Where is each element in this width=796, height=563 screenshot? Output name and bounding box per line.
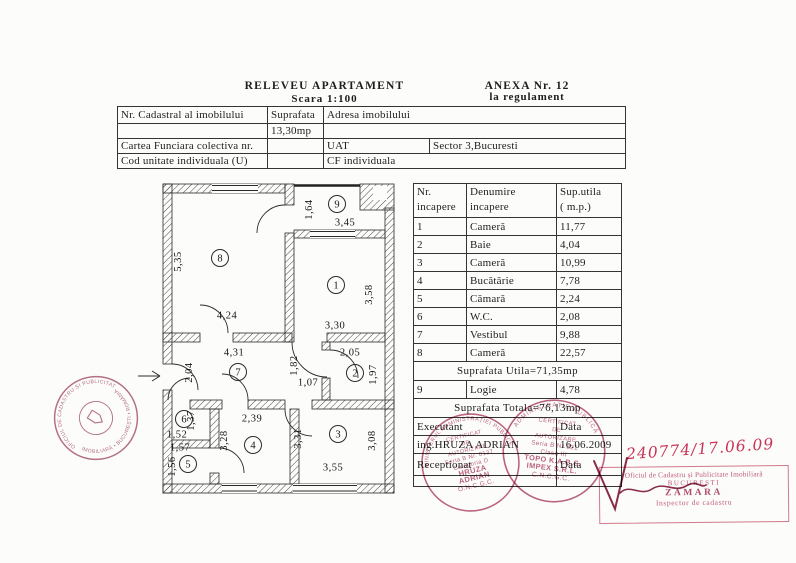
room-number: 7 <box>235 368 240 379</box>
sector-value: Sector 3,Bucuresti <box>430 139 626 154</box>
room-area: 10,99 <box>557 254 622 272</box>
room-name: Vestibul <box>467 326 557 344</box>
room-row: 3Cameră10,99 <box>414 254 622 272</box>
room-nr: 8 <box>414 344 467 362</box>
room-number: 3 <box>335 430 340 441</box>
dimension-label: 3,58 <box>364 284 375 304</box>
stamp-text-line: CERTIFICAT <box>538 417 577 428</box>
header-denumire-line2: incapere <box>470 200 553 215</box>
floorplan-svg: 8912765435,354,241,643,453,583,302,051,9… <box>130 182 400 500</box>
svg-text:OFICIUL DE CADASTRU ȘI PUBLICI: OFICIUL DE CADASTRU ȘI PUBLICITATE <box>33 358 118 458</box>
room-name: W.C. <box>467 308 557 326</box>
dimension-label: 2,04 <box>184 362 195 383</box>
dimension-label: 3,30 <box>325 321 345 332</box>
room-area: 4,04 <box>557 236 622 254</box>
adresa-value <box>324 124 626 139</box>
dimension-label: 2,05 <box>340 348 360 359</box>
room-name: Baie <box>467 236 557 254</box>
floorplan: 8912765435,354,241,643,453,583,302,051,9… <box>130 182 400 500</box>
room-name: Cameră <box>467 344 557 362</box>
dimension-label: 2,39 <box>242 414 262 425</box>
rooms-header-row: Nr. incapere Denumire incapere Sup.utila… <box>414 184 622 218</box>
room-area: 2,24 <box>557 290 622 308</box>
title-block: RELEVEU APARTAMENT Scara 1:100 <box>222 80 427 105</box>
header-nr-incapere: Nr. incapere <box>414 184 467 218</box>
dimension-label: 4,31 <box>224 348 244 359</box>
dimension-label: 3,45 <box>335 218 355 229</box>
walls-group <box>163 184 394 493</box>
info-row-4: Cod unitate individuala (U) CF individua… <box>118 154 626 169</box>
room-area: 11,77 <box>557 218 622 236</box>
subtotal-row: Suprafata Utila=71,35mp <box>414 362 622 381</box>
header-suputila: Sup.utila ( m.p.) <box>557 184 622 218</box>
anexa-block: ANEXA Nr. 12 la regulament <box>466 80 588 103</box>
coat-of-arms-icon <box>87 410 104 426</box>
room-number: 2 <box>352 369 357 380</box>
room-row: 5Cămară2,24 <box>414 290 622 308</box>
cod-unitate-label: Cod unitate individuala (U) <box>118 154 268 169</box>
info-row-3: Cartea Funciara colectiva nr. UAT Sector… <box>118 139 626 154</box>
header-nr-line1: Nr. <box>417 185 463 200</box>
dimension-label: 3,08 <box>367 430 378 450</box>
room-nr: 7 <box>414 326 467 344</box>
cartea-funciara-value <box>268 139 324 154</box>
dimension-label: 1,07 <box>298 378 318 389</box>
dimension-label: 1,56 <box>167 456 178 476</box>
room-row: 4Bucătărie7,78 <box>414 272 622 290</box>
room-nr: 9 <box>414 381 467 399</box>
dimension-label: 3,55 <box>323 463 343 474</box>
cf-value: CF individuala <box>324 154 626 169</box>
header-denumire: Denumire incapere <box>467 184 557 218</box>
room-area: 4,78 <box>557 381 622 399</box>
header-suputila-line1: Sup.utila <box>560 185 618 200</box>
adresa-label: Adresa imobilului <box>324 107 626 124</box>
inspector-signature <box>588 455 738 527</box>
room-area: 7,78 <box>557 272 622 290</box>
room-nr: 1 <box>414 218 467 236</box>
room-name: Cameră <box>467 254 557 272</box>
room-area: 9,88 <box>557 326 622 344</box>
room-row: 8Cameră22,57 <box>414 344 622 362</box>
room-name: Cameră <box>467 218 557 236</box>
cadastral-value <box>118 124 268 139</box>
info-row-2: 13,30mp <box>118 124 626 139</box>
cadastral-info-table: Nr. Cadastral al imobilului Suprafata Ad… <box>117 106 626 169</box>
room-row: 2Baie4,04 <box>414 236 622 254</box>
room-row: 6W.C.2,08 <box>414 308 622 326</box>
dimension-label: 1,82 <box>289 355 300 375</box>
room-nr: 4 <box>414 272 467 290</box>
scanned-document-page: RELEVEU APARTAMENT Scara 1:100 ANEXA Nr.… <box>0 0 796 563</box>
anexa-regulation: la regulament <box>466 91 588 103</box>
dimension-label: 3,31 <box>293 428 304 448</box>
room-nr: 2 <box>414 236 467 254</box>
entrance-arrow-icon <box>138 371 160 381</box>
suprafata-label: Suprafata <box>268 107 324 124</box>
room-number: 4 <box>250 441 256 452</box>
cadastral-label: Nr. Cadastral al imobilului <box>118 107 268 124</box>
room-nr: 3 <box>414 254 467 272</box>
document-scale: Scara 1:100 <box>222 93 427 105</box>
dimension-label: 1,37 <box>186 410 197 430</box>
uat-label: UAT <box>324 139 430 154</box>
room-number: 8 <box>217 254 222 265</box>
stamp-ring-top: OFICIUL DE CADASTRU ȘI PUBLICITATE <box>33 358 118 458</box>
stamp-text-line: DE <box>552 427 562 434</box>
dimension-label: 1,64 <box>304 199 315 220</box>
room-area: 22,57 <box>557 344 622 362</box>
dimension-label: 1,52 <box>167 430 187 441</box>
header-suputila-line2: ( m.p.) <box>560 200 618 215</box>
room-row: 7Vestibul9,88 <box>414 326 622 344</box>
room-number: 9 <box>334 200 339 211</box>
cod-unitate-value <box>268 154 324 169</box>
dimension-label: 3,28 <box>219 430 230 450</box>
room-nr: 5 <box>414 290 467 308</box>
dimension-label: 4,24 <box>217 311 238 322</box>
room-name: Bucătărie <box>467 272 557 290</box>
room-number: 1 <box>333 281 338 292</box>
dimension-label: 1,97 <box>368 364 379 384</box>
dimension-label: 5,35 <box>173 251 184 271</box>
rooms-rows: 1Cameră11,772Baie4,043Cameră10,994Bucătă… <box>414 218 622 362</box>
info-row-1: Nr. Cadastral al imobilului Suprafata Ad… <box>118 107 626 124</box>
dimension-label: 1,57 <box>170 443 190 454</box>
subtotal-value: Suprafata Utila=71,35mp <box>414 362 622 381</box>
header-denumire-line1: Denumire <box>470 185 553 200</box>
cartea-funciara-label: Cartea Funciara colectiva nr. <box>118 139 268 154</box>
room-number: 5 <box>185 460 190 471</box>
room-row: 1Cameră11,77 <box>414 218 622 236</box>
room-area: 2,08 <box>557 308 622 326</box>
room-nr: 6 <box>414 308 467 326</box>
header-nr-line2: incapere <box>417 200 463 215</box>
room-name: Cămară <box>467 290 557 308</box>
document-title: RELEVEU APARTAMENT <box>222 80 427 92</box>
suprafata-value: 13,30mp <box>268 124 324 139</box>
